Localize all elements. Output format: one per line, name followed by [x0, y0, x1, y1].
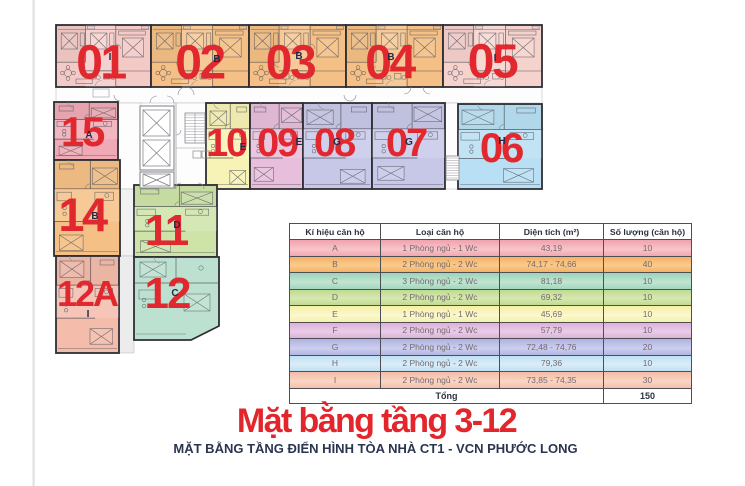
svg-text:06: 06 — [480, 124, 523, 171]
svg-text:03: 03 — [266, 37, 315, 90]
svg-text:I: I — [87, 309, 90, 320]
svg-text:C: C — [171, 288, 178, 299]
svg-text:14: 14 — [58, 188, 108, 241]
svg-text:11: 11 — [145, 206, 189, 255]
svg-text:15: 15 — [61, 108, 105, 155]
svg-text:B: B — [295, 51, 302, 62]
svg-text:09: 09 — [257, 121, 298, 165]
svg-text:D: D — [173, 220, 180, 231]
svg-text:G: G — [333, 137, 341, 148]
svg-text:12A: 12A — [57, 273, 119, 314]
svg-text:B: B — [387, 52, 394, 63]
svg-text:04: 04 — [365, 37, 416, 90]
svg-text:I: I — [494, 53, 497, 64]
svg-text:12: 12 — [145, 269, 190, 318]
svg-text:01: 01 — [76, 37, 126, 90]
svg-text:E: E — [240, 142, 247, 153]
svg-text:H: H — [498, 136, 505, 147]
svg-text:I: I — [109, 52, 112, 63]
svg-text:B: B — [213, 54, 220, 65]
svg-text:G: G — [405, 137, 413, 148]
svg-text:A: A — [85, 130, 92, 141]
svg-text:E: E — [296, 137, 303, 148]
svg-text:B: B — [91, 211, 98, 222]
